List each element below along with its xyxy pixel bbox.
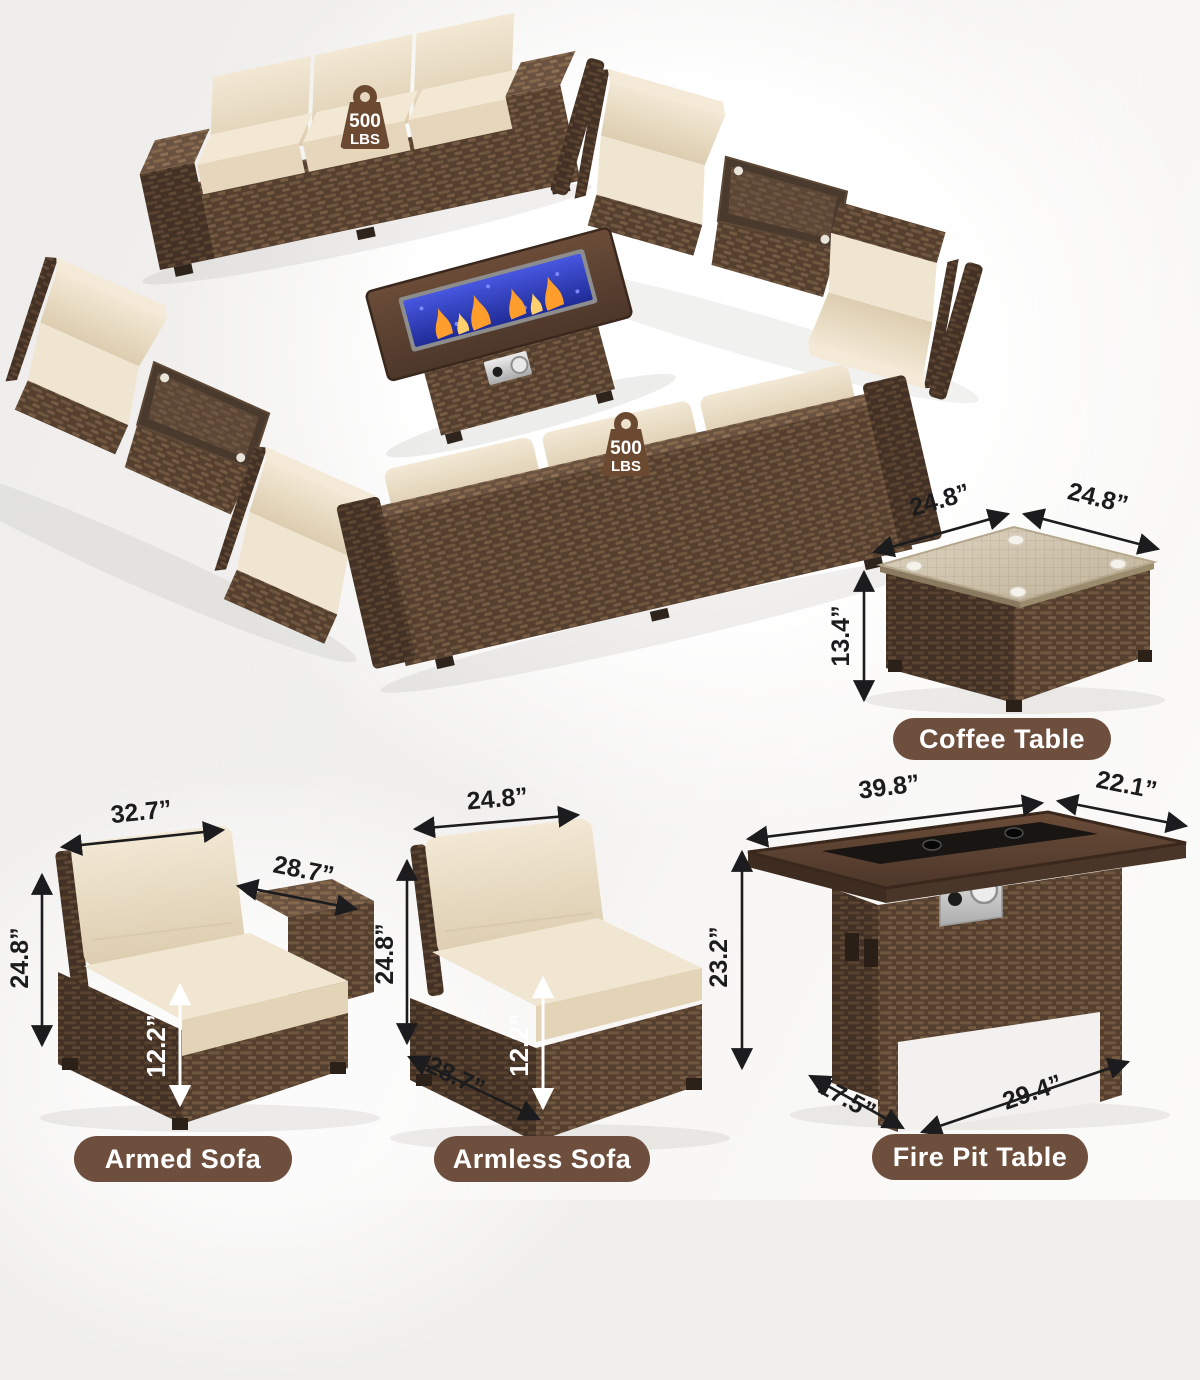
svg-text:23.2”: 23.2” bbox=[705, 926, 733, 987]
badge-weight-value: 500 bbox=[349, 111, 381, 132]
furniture-scene: 500 LBS bbox=[0, 0, 1200, 1200]
svg-text:22.1”: 22.1” bbox=[1094, 766, 1159, 805]
badge-weight-unit: LBS bbox=[350, 131, 380, 148]
dim-armless-back-width: 24.8” bbox=[415, 782, 578, 829]
dim-armed-height: 24.8” bbox=[6, 875, 42, 1045]
fire-pit-product-illustration bbox=[748, 812, 1186, 1132]
armed-sofa-label: Armed Sofa bbox=[105, 1144, 262, 1175]
svg-text:24.8”: 24.8” bbox=[371, 923, 399, 984]
coffee-table-label-pill: Coffee Table bbox=[893, 718, 1111, 760]
badge-weight-unit: LBS bbox=[611, 458, 641, 475]
coffee-table-product-illustration bbox=[865, 527, 1165, 714]
corner-chair-left bbox=[543, 57, 738, 256]
svg-text:24.8”: 24.8” bbox=[466, 782, 529, 815]
svg-text:32.7”: 32.7” bbox=[109, 795, 173, 829]
vent-hole bbox=[845, 933, 859, 961]
svg-text:12.2”: 12.2” bbox=[141, 1014, 171, 1078]
fire-pit-table-label-pill: Fire Pit Table bbox=[872, 1134, 1088, 1180]
ignition-button bbox=[948, 892, 962, 906]
svg-text:24.8”: 24.8” bbox=[1065, 477, 1131, 519]
badge-weight-value: 500 bbox=[610, 438, 642, 459]
dim-armless-height: 24.8” bbox=[371, 861, 407, 1043]
product-infographic: 500 LBS bbox=[0, 0, 1200, 1200]
svg-text:28.7”: 28.7” bbox=[271, 851, 336, 890]
bottom-sofa-back-illustration bbox=[330, 351, 951, 708]
svg-text:12.2”: 12.2” bbox=[504, 1013, 534, 1077]
coffee-table-label: Coffee Table bbox=[919, 724, 1085, 755]
armless-sofa-label: Armless Sofa bbox=[453, 1144, 632, 1175]
dim-firepit-top-depth: 22.1” bbox=[1058, 766, 1186, 826]
svg-text:24.8”: 24.8” bbox=[6, 927, 34, 988]
vent-hole bbox=[864, 939, 878, 967]
armless-sofa-label-pill: Armless Sofa bbox=[434, 1136, 650, 1182]
svg-text:13.4”: 13.4” bbox=[827, 605, 855, 666]
armless-sofa-product-illustration bbox=[390, 818, 730, 1152]
dim-firepit-height: 23.2” bbox=[705, 852, 742, 1068]
fire-pit-table-label: Fire Pit Table bbox=[893, 1142, 1068, 1173]
armed-sofa-label-pill: Armed Sofa bbox=[74, 1136, 292, 1182]
svg-text:39.8”: 39.8” bbox=[857, 769, 921, 804]
